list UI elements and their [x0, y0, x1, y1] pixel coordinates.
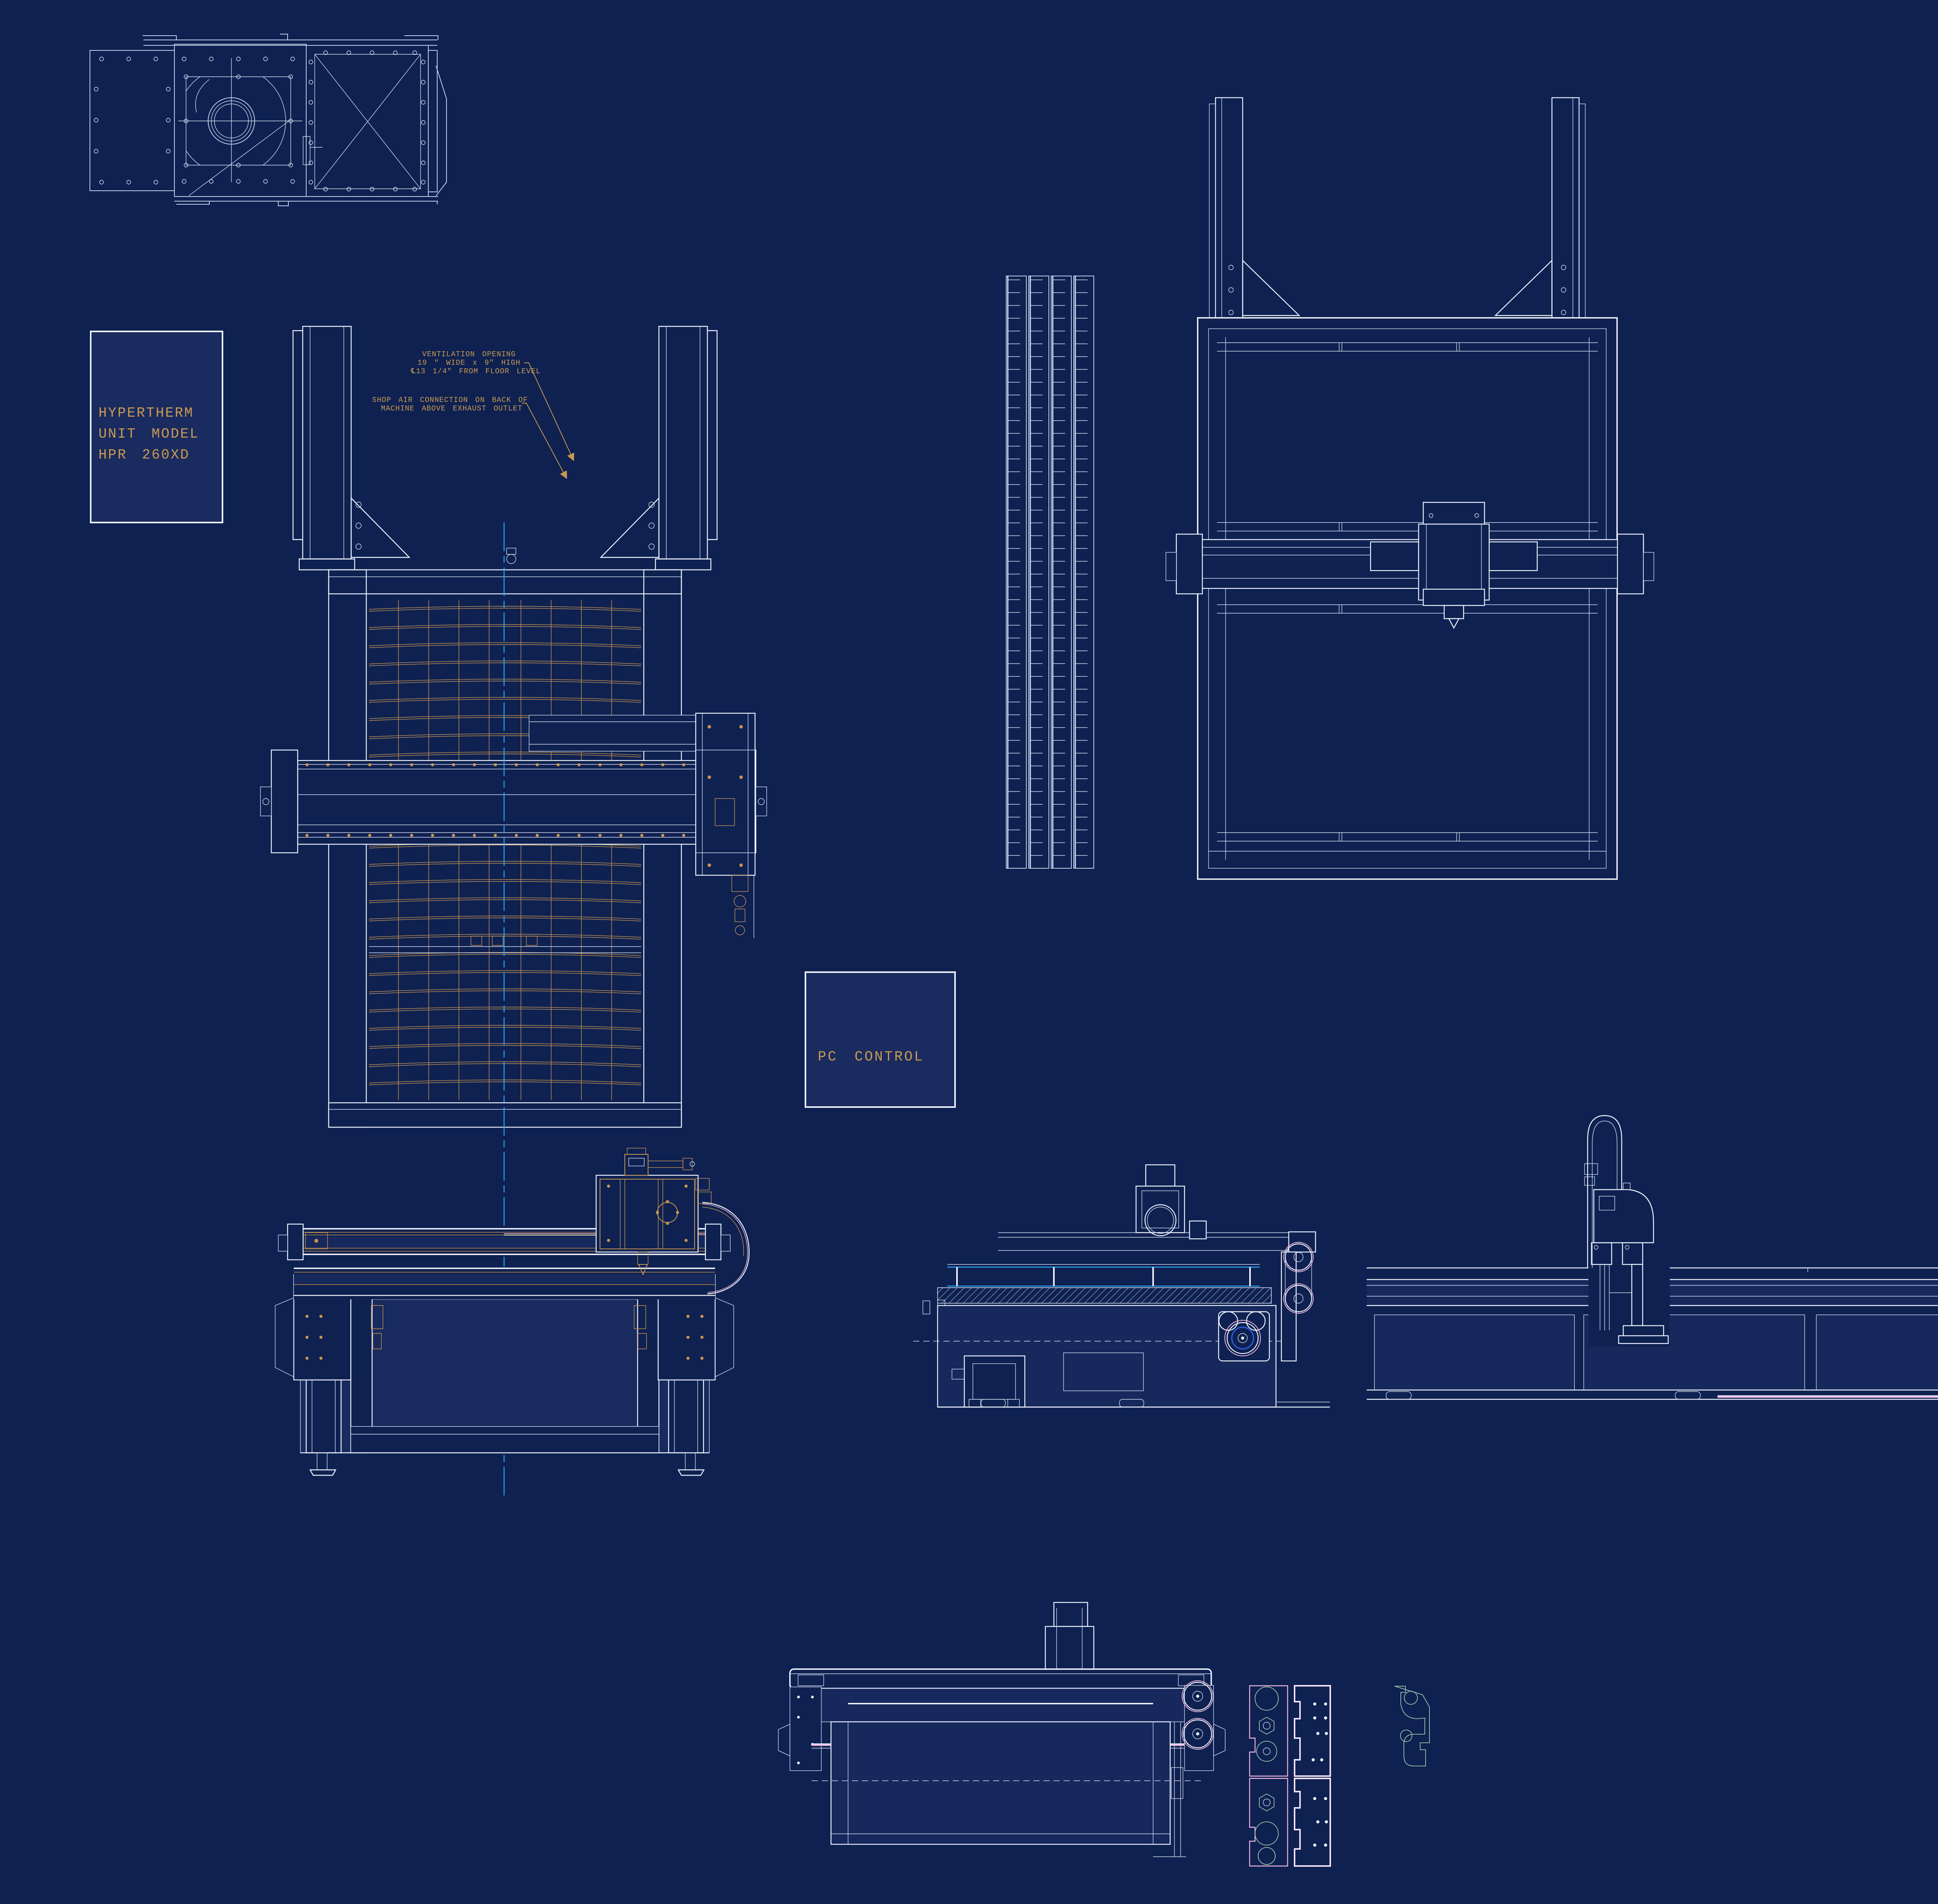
view-cut-plate-parts: [1250, 1686, 1429, 1866]
cad-path: [1008, 276, 1075, 868]
slat-line: [369, 1080, 641, 1083]
bolt-hole: [166, 149, 170, 153]
bolt-hole: [347, 187, 351, 191]
slat-line: [369, 991, 641, 994]
slat-line: [369, 1009, 641, 1012]
fe-feet: [310, 1470, 704, 1475]
gantry-bolt: [578, 763, 581, 766]
cad-rect: [317, 1453, 327, 1470]
bolt-hole: [127, 180, 131, 184]
slat-line: [369, 1043, 641, 1047]
bolt-hole: [209, 57, 213, 61]
blower-rails: [143, 34, 438, 206]
slat-line: [369, 918, 641, 921]
cad-polygon: [1259, 1794, 1274, 1811]
cad-circle: [1561, 288, 1566, 292]
cad-path: [1295, 1686, 1330, 1776]
cad-circle: [649, 544, 654, 549]
cad-rect: [735, 909, 745, 922]
cad-rect: [294, 1274, 715, 1284]
cad-circle: [1229, 288, 1233, 292]
cad-rect: [1374, 1315, 1574, 1390]
shop-air-fitting: [507, 554, 516, 564]
cad-rect: [1643, 552, 1654, 581]
slat-line: [369, 1027, 641, 1030]
cad-rect: [1029, 276, 1049, 868]
lse-head-box: [1594, 1183, 1654, 1243]
gantry-bolt: [557, 834, 560, 837]
ge-lower-body: [831, 1722, 1170, 1844]
cad-rect: [1675, 1392, 1700, 1399]
gantry-bolt: [640, 763, 643, 766]
cad-rect: [1289, 1232, 1316, 1252]
cad-rect: [1423, 589, 1485, 605]
gantry-bolt: [389, 834, 392, 837]
gantry-bolt: [494, 834, 497, 837]
cad-circle: [319, 1315, 322, 1318]
cad-circle: [1316, 1732, 1319, 1735]
cad-circle: [1312, 1758, 1315, 1761]
gantry-bolt: [598, 763, 602, 766]
cad-circle: [319, 1357, 322, 1360]
bolt-hole: [309, 80, 313, 84]
cad-circle: [1324, 1797, 1327, 1800]
cad-circle: [685, 1185, 688, 1188]
cad-circle: [708, 864, 711, 867]
bolt-hole: [413, 187, 417, 191]
view-exhaust-blower-top: [90, 34, 447, 206]
view-mid-side-elevation: [913, 1165, 1330, 1407]
ventilation-line-3: ℄13 1/4" FROM FLOOR LEVEL: [411, 367, 527, 376]
cad-circle: [1263, 1722, 1270, 1729]
slat-line: [369, 697, 641, 700]
cad-circle: [319, 1336, 322, 1339]
slat-line: [369, 880, 641, 883]
mse-pulley-plate: [1219, 1312, 1269, 1361]
cad-rect: [1623, 1183, 1630, 1190]
cad-rect: [288, 1224, 303, 1260]
annotation-ventilation: VENTILATION OPENING 19 " WIDE x 9" HIGH …: [411, 350, 527, 376]
gantry-bolt: [682, 834, 685, 837]
cad-circle: [708, 725, 711, 729]
gantry-bolt: [452, 834, 455, 837]
bolt-hole: [94, 118, 98, 122]
cad-rect: [1617, 534, 1643, 594]
bolt-hole: [370, 187, 374, 191]
slat-line: [369, 1062, 641, 1065]
cad-rect: [351, 1426, 659, 1453]
blower-panels: [90, 44, 437, 197]
cad-rect: [1051, 276, 1071, 868]
bolt-hole: [324, 187, 328, 191]
plan-bottom-beam: [329, 1103, 681, 1127]
cad-rect: [790, 1687, 821, 1771]
cad-rect: [648, 1161, 683, 1168]
cad-circle: [740, 864, 743, 867]
bolt-hole: [264, 179, 267, 183]
cad-rect: [923, 1301, 930, 1314]
cad-path: [1209, 337, 1606, 860]
cad-circle: [700, 1315, 703, 1318]
gantry-bolt: [452, 763, 455, 766]
cad-circle: [1561, 265, 1566, 270]
gantry-bolt: [494, 763, 497, 766]
bolt-hole: [421, 100, 425, 104]
slat-line: [369, 881, 641, 885]
cad-circle: [1258, 1847, 1275, 1864]
cad-circle: [1196, 1695, 1199, 1698]
cad-circle: [607, 1239, 610, 1242]
bolt-hole: [421, 121, 425, 124]
cad-circle: [1229, 265, 1233, 270]
cad-circle: [1313, 1844, 1316, 1847]
cad-circle: [1255, 1822, 1278, 1845]
gantry-bolt: [431, 763, 434, 766]
slat-line: [369, 679, 641, 682]
cad-circle: [1313, 1716, 1316, 1719]
slat-line: [369, 954, 641, 957]
plan-left-rail: [329, 570, 366, 1127]
cad-rect: [1579, 104, 1585, 318]
cad-circle: [1313, 1797, 1316, 1800]
cad-circle: [1313, 1702, 1316, 1706]
view-slat-rack: [1006, 276, 1094, 868]
cad-circle: [356, 523, 361, 528]
cad-rect: [1045, 1626, 1094, 1669]
gantry-bolt: [368, 763, 371, 766]
bolt-hole: [236, 179, 240, 183]
gantry-end-plate-left: [271, 750, 298, 853]
cad-rect: [278, 1235, 288, 1251]
bolt-hole: [421, 80, 425, 84]
slat-line: [369, 1007, 641, 1010]
bolt-hole: [309, 161, 313, 165]
cad-circle: [740, 776, 743, 779]
cad-circle: [1400, 1730, 1412, 1742]
cad-circle: [649, 502, 654, 507]
cad-circle: [1325, 1820, 1328, 1823]
cad-rect: [1386, 1392, 1411, 1399]
bolt-hole: [309, 100, 313, 104]
cad-circle: [305, 1336, 309, 1339]
cad-rect: [507, 548, 516, 554]
cad-rect: [260, 787, 271, 816]
gantry-bolt: [578, 834, 581, 837]
cad-path: [1449, 619, 1459, 628]
cad-rect: [1585, 1164, 1598, 1174]
bolt-hole: [94, 149, 98, 153]
slat-line: [369, 752, 641, 755]
bolt-hole: [166, 87, 170, 91]
cad-circle: [314, 1239, 318, 1243]
slat-line: [369, 845, 641, 848]
slat-line: [369, 1064, 641, 1067]
cad-circle: [811, 1696, 814, 1699]
gantry-bolt: [305, 834, 309, 837]
annotation-shop-air: SHOP AIR CONNECTION ON BACK OF MACHINE A…: [372, 396, 522, 413]
mse-motor-top: [1136, 1165, 1206, 1239]
slat-line: [369, 606, 641, 609]
cad-rect: [1489, 542, 1537, 571]
gantry-bolt: [305, 763, 309, 766]
plan-right-rail: [644, 570, 681, 1127]
ge-top-band: [790, 1669, 1211, 1688]
cad-path: [947, 1267, 1260, 1286]
bolt-hole: [264, 57, 267, 61]
cad-rect: [685, 1453, 695, 1470]
bolt-hole: [182, 57, 186, 61]
cad-rect: [1371, 542, 1419, 571]
gantry-bolt: [473, 834, 476, 837]
bolt-hole: [127, 57, 131, 61]
cad-circle: [1196, 1732, 1199, 1735]
cad-circle: [1263, 1748, 1270, 1755]
cut-part-small-bracket: [1395, 1686, 1429, 1766]
cad-circle: [607, 1185, 610, 1188]
slat-line: [369, 861, 641, 864]
gantry-bolt: [557, 763, 560, 766]
slat-line: [369, 643, 641, 646]
mse-hatch-band: [938, 1288, 1271, 1303]
bolt-hole: [421, 60, 425, 64]
cad-rect: [1423, 502, 1485, 524]
cad-circle: [708, 776, 711, 779]
view-gantry-end-elevation: [778, 1602, 1225, 1857]
cad-circle: [1263, 1799, 1270, 1806]
bolt-hole: [421, 141, 425, 145]
bolt-hole: [291, 179, 295, 183]
cad-rect: [1185, 1685, 1214, 1771]
slat-line: [369, 934, 641, 937]
shop-air-line-2: MACHINE ABOVE EXHAUST OUTLET: [372, 404, 522, 413]
plan-column-bases: [299, 559, 711, 570]
cad-rect: [1054, 1602, 1088, 1626]
cad-circle: [686, 1315, 690, 1318]
cad-circle: [305, 1315, 309, 1318]
cad-rect: [683, 1158, 692, 1170]
slat-line: [369, 863, 641, 866]
cad-circle: [686, 1336, 690, 1339]
cad-rect: [1619, 1336, 1668, 1343]
gantry-bolt: [389, 763, 392, 766]
slat-line: [369, 973, 641, 976]
cad-circle: [700, 1336, 703, 1339]
gantry-bolt: [515, 763, 518, 766]
cad-circle: [735, 926, 745, 935]
cad-polygon: [1259, 1717, 1274, 1734]
view-long-side-elevation: [1367, 1116, 1938, 1412]
gantry-bolt: [661, 834, 664, 837]
cad-path: [957, 1267, 1250, 1286]
bolt-hole: [421, 180, 425, 184]
gantry-bolt: [536, 763, 539, 766]
hypertherm-label-box: HYPERTHERM UNIT MODEL HPR 260XD: [90, 331, 223, 523]
cad-rect: [627, 1148, 646, 1154]
cad-path: [1367, 1390, 1938, 1399]
pc-control-label-box: PC CONTROL: [805, 971, 956, 1108]
cad-circle: [797, 1696, 800, 1699]
cad-rect: [1209, 104, 1216, 318]
slat-line: [369, 1025, 641, 1028]
plan-carriage: [696, 713, 755, 875]
bolt-hole: [421, 161, 425, 165]
hypertherm-line-3: HPR 260XD: [98, 445, 222, 466]
cad-rect: [1632, 1264, 1643, 1326]
gantry-bolt: [682, 763, 685, 766]
gantry-bolt: [410, 763, 413, 766]
cad-circle: [797, 1762, 800, 1764]
slat-line: [369, 661, 641, 664]
cad-rect: [698, 1192, 711, 1204]
cad-circle: [797, 1716, 800, 1719]
mse-right-pulleys: [1281, 1242, 1313, 1361]
cad-circle: [1316, 1820, 1319, 1823]
fe-leg-right: [669, 1380, 703, 1453]
slat-line: [369, 898, 641, 901]
bolt-hole: [291, 57, 295, 61]
slat-line: [369, 989, 641, 992]
slat-line: [369, 663, 641, 666]
cad-circle: [356, 502, 361, 507]
fe-motor: [625, 1148, 695, 1175]
cad-rect: [721, 1235, 730, 1251]
door-x-brace: [315, 54, 421, 189]
gantry-bolt: [515, 834, 518, 837]
cad-circle: [1229, 310, 1233, 315]
view-table-plan-front: [260, 326, 767, 1127]
cad-rect: [1209, 329, 1606, 868]
cad-drawing: [0, 0, 1938, 1904]
gantry-bolt: [347, 763, 350, 766]
cad-rect: [1136, 1186, 1185, 1233]
bolt-hole: [309, 60, 313, 64]
view-front-elevation: [275, 1148, 749, 1475]
gantry-bolt: [473, 763, 476, 766]
gantry-bolt: [619, 763, 622, 766]
cad-rect: [732, 875, 748, 892]
bolt-hole: [182, 179, 186, 183]
cad-circle: [1241, 1337, 1244, 1340]
cad-circle: [685, 1239, 688, 1242]
bolt-hole: [154, 57, 158, 61]
rear-torch: [1444, 605, 1464, 619]
cad-circle: [1404, 1691, 1417, 1704]
slat-line: [369, 971, 641, 974]
slat-line: [369, 936, 641, 939]
slat-line: [369, 754, 641, 757]
cad-path: [1222, 98, 1573, 318]
cad-circle: [1255, 1687, 1278, 1710]
fan-scroll: [195, 79, 209, 112]
cad-circle: [734, 895, 746, 907]
gantry-bolt: [598, 834, 602, 837]
cad-circle: [686, 1357, 690, 1360]
cad-circle: [676, 1211, 679, 1214]
gantry-bolt: [661, 763, 664, 766]
bolt-hole: [309, 141, 313, 145]
cad-circle: [356, 544, 361, 549]
cad-circle: [1561, 310, 1566, 315]
cad-circle: [656, 1211, 659, 1214]
cad-rect: [625, 1154, 648, 1175]
cad-rect: [1176, 534, 1202, 594]
rear-rail-strips: [1217, 343, 1598, 841]
gantry-bolt: [368, 834, 371, 837]
mid-support: [369, 947, 641, 953]
y-rail-bar: [529, 715, 696, 751]
gantry-bolt: [431, 834, 434, 837]
rear-frame: [1198, 318, 1617, 879]
gantry-bolt: [410, 834, 413, 837]
bolt-hole: [166, 118, 170, 122]
cad-path: [522, 403, 567, 478]
cad-circle: [1324, 1844, 1327, 1847]
cad-circle: [1257, 1741, 1277, 1761]
hypertherm-line-1: HYPERTHERM: [98, 403, 222, 424]
cad-rect: [1216, 98, 1243, 318]
cad-circle: [666, 1222, 669, 1225]
hypertherm-line-2: UNIT MODEL: [98, 424, 222, 445]
cad-rect: [1074, 276, 1094, 868]
leader-lines: [522, 363, 574, 478]
bolt-hole: [393, 187, 397, 191]
gantry-bolt: [347, 834, 350, 837]
cad-rect: [705, 1224, 721, 1260]
cad-rect: [1146, 1165, 1175, 1186]
bolt-hole: [309, 121, 313, 124]
cad-path: [1395, 1686, 1429, 1766]
slat-line: [369, 681, 641, 684]
gantry-bolt: [326, 763, 329, 766]
cad-rect: [1585, 1177, 1595, 1185]
slat-line: [369, 1082, 641, 1085]
cad-circle: [649, 523, 654, 528]
slat-line: [369, 900, 641, 903]
slat-bed: [369, 600, 641, 1100]
plan-torch-cluster: [732, 875, 754, 938]
slat-line: [369, 699, 641, 702]
slat-line: [369, 1045, 641, 1049]
cad-rect: [1166, 552, 1176, 581]
pc-control-label: PC CONTROL: [818, 1049, 924, 1065]
cad-rect: [756, 787, 767, 816]
fe-leg-left: [306, 1380, 341, 1453]
cad-circle: [740, 725, 743, 729]
cad-rect: [1171, 1768, 1183, 1799]
slat-line: [369, 916, 641, 919]
bolt-hole: [236, 57, 240, 61]
bolt-hole: [100, 57, 103, 61]
ge-body-band: [797, 1688, 1199, 1722]
bolt-hole: [309, 180, 313, 184]
cad-rect: [1190, 1221, 1206, 1239]
cad-rect: [1816, 1315, 1938, 1390]
gantry-bolt: [536, 834, 539, 837]
slat-line: [369, 608, 641, 611]
plan-top-beam: [329, 570, 681, 594]
bolt-hole: [94, 87, 98, 91]
cad-viewport: HYPERTHERM UNIT MODEL HPR 260XD PC CONTR…: [0, 0, 1938, 1904]
gantry-bolt: [326, 834, 329, 837]
view-table-plan-rear: [1166, 98, 1654, 879]
slat-line: [369, 624, 641, 628]
cad-circle: [1324, 1702, 1327, 1706]
plan-gussets: [351, 498, 659, 557]
bolt-hole: [154, 180, 158, 184]
ventilation-line-1: VENTILATION OPENING: [411, 350, 527, 359]
rear-carriage: [1419, 524, 1489, 600]
shop-air-line-1: SHOP AIR CONNECTION ON BACK OF: [372, 396, 522, 404]
